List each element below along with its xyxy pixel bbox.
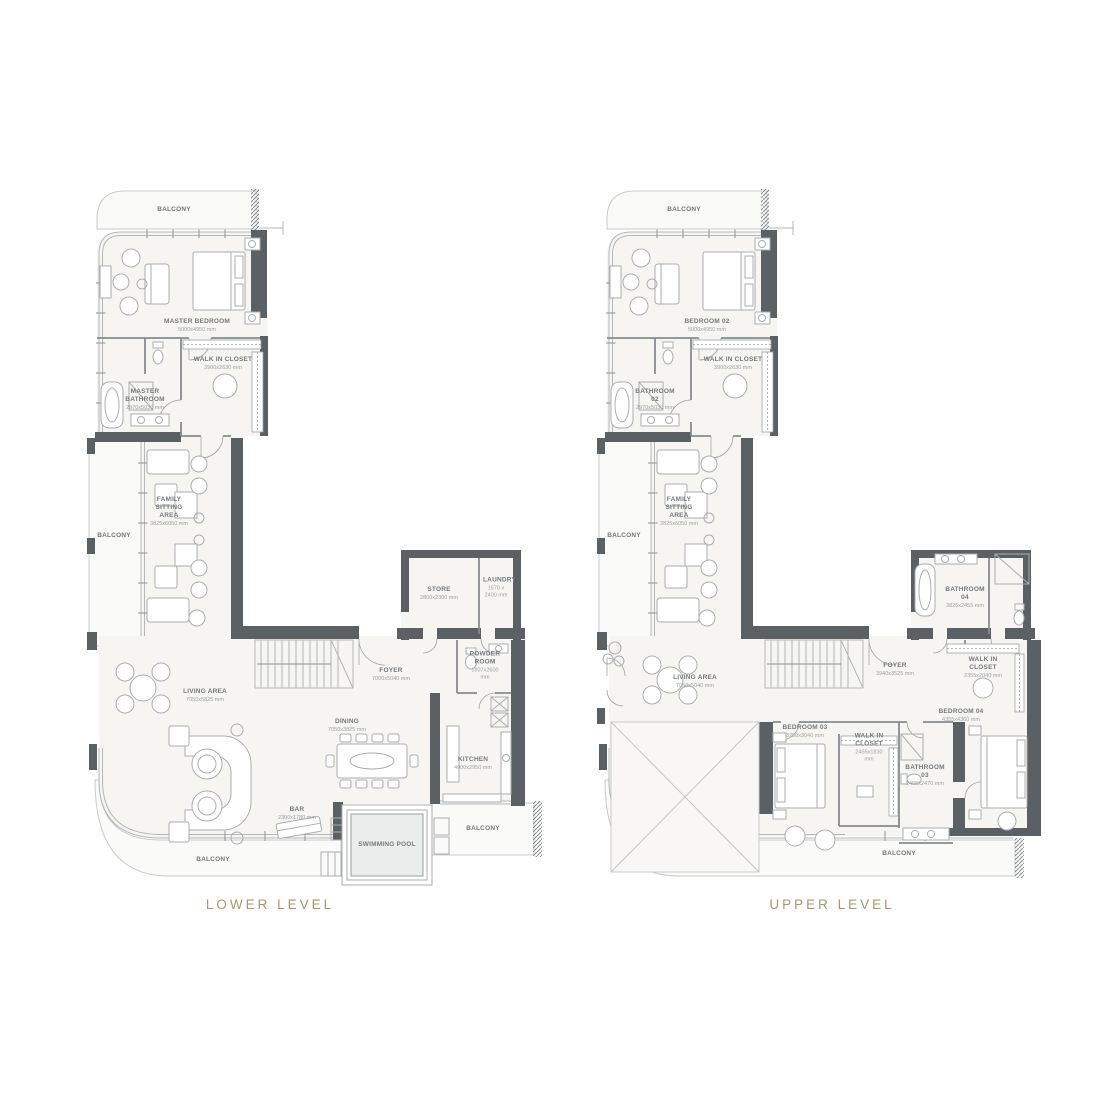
armchair-icon: [665, 484, 687, 506]
bathtub-icon: [611, 382, 633, 428]
floor-areas: [95, 232, 525, 838]
nightstand-icon: [755, 312, 770, 324]
vanity-icon: [935, 554, 977, 564]
nightstand-icon: [755, 238, 770, 250]
round-chair-icon: [152, 663, 170, 681]
upper-level-title: UPPER LEVEL: [712, 897, 952, 912]
upper-plan-drawing: [595, 188, 1055, 888]
round-chair-icon: [701, 582, 717, 598]
nightstand-icon: [773, 733, 786, 742]
round-chair-icon: [679, 656, 697, 674]
round-chair-icon: [191, 478, 207, 494]
round-chair-icon: [189, 610, 205, 626]
bed-icon: [981, 736, 1027, 808]
bed-icon: [775, 744, 825, 808]
ottoman-icon: [857, 786, 873, 797]
sofa-icon: [145, 264, 169, 304]
sofa-icon: [657, 450, 699, 474]
round-chair-icon: [701, 456, 717, 472]
sofa-icon: [147, 450, 189, 474]
round-table-icon: [657, 667, 683, 693]
round-chair-icon: [191, 560, 207, 576]
vanity-icon: [903, 828, 949, 840]
round-chair-icon: [152, 695, 170, 713]
void-open-to-below: [611, 722, 759, 872]
toilet-icon: [663, 342, 673, 364]
sofa-icon: [147, 598, 189, 622]
ottoman-icon: [213, 374, 237, 398]
sofa-icon: [657, 598, 699, 622]
bed-icon: [193, 252, 245, 310]
tv-console-icon: [100, 266, 111, 298]
nightstand-icon: [245, 238, 260, 250]
bed-icon: [703, 252, 755, 310]
round-chair-icon: [191, 456, 207, 472]
nightstand-icon: [245, 312, 260, 324]
floor-plan-page: { "page": {"background": "#ffffff"}, "co…: [0, 0, 1100, 1100]
nightstand-icon: [969, 810, 981, 819]
round-chair-icon: [701, 560, 717, 576]
pouf-icon: [998, 812, 1016, 830]
round-chair-icon: [643, 686, 661, 704]
round-chair-icon: [116, 663, 134, 681]
upper-level-plan: BALCONYBEDROOM 025000x4950 mmWALK IN CLO…: [595, 188, 1055, 888]
round-chair-icon: [191, 582, 207, 598]
coffee-table-icon: [685, 492, 707, 518]
ottoman-icon: [973, 678, 993, 698]
toilet-icon: [901, 774, 921, 784]
toilet-icon: [153, 342, 163, 364]
nightstand-icon: [773, 810, 786, 819]
ottoman-icon: [723, 374, 747, 398]
toilet-icon: [1014, 604, 1024, 625]
bathtub-icon: [915, 564, 935, 616]
round-chair-icon: [116, 695, 134, 713]
pouf-icon: [815, 830, 835, 850]
lower-level-title: LOWER LEVEL: [150, 897, 390, 912]
bathtub-icon: [101, 382, 123, 428]
armchair-icon: [155, 484, 177, 506]
balcony-divider-hatch: [533, 801, 542, 857]
armchair-icon: [155, 566, 177, 588]
round-table-icon: [130, 675, 156, 701]
pouf-icon: [785, 826, 805, 846]
vanity-icon: [131, 414, 169, 426]
coffee-table-icon: [175, 492, 197, 518]
round-chair-icon: [679, 686, 697, 704]
round-chair-icon: [699, 610, 715, 626]
lower-level-plan: BALCONYMASTER BEDROOM5000x4950 mmWALK IN…: [85, 188, 545, 888]
tv-console-icon: [610, 266, 621, 298]
vanity-icon: [641, 414, 679, 426]
round-chair-icon: [643, 656, 661, 674]
balcony-divider-hatch: [1015, 838, 1024, 878]
nightstand-icon: [969, 726, 981, 735]
toilet-icon: [466, 655, 477, 669]
sofa-icon: [655, 264, 679, 304]
lower-plan-drawing: [85, 188, 545, 888]
round-chair-icon: [701, 478, 717, 494]
armchair-icon: [665, 566, 687, 588]
